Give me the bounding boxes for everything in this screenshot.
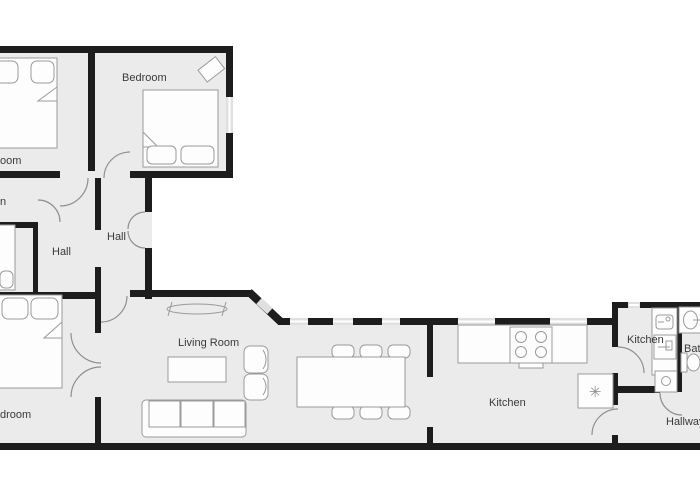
room-label-living-room: Living Room <box>178 337 239 349</box>
room-label-bathroom: Bat <box>684 343 700 355</box>
toilet-icon <box>681 353 700 372</box>
room-label-bedroom-top-left: oom <box>0 155 21 167</box>
room-label-hallway: Hallway <box>666 416 700 428</box>
sofa-icon <box>142 400 246 437</box>
room-label-hall-upper: Hall <box>107 231 126 243</box>
bed-icon <box>143 90 218 167</box>
bed-icon <box>0 58 57 148</box>
armchair-icon <box>244 346 268 373</box>
bathroom-sink-icon <box>679 307 700 333</box>
floorplan-drawing: ✳ <box>0 0 700 500</box>
dining-table-icon <box>297 357 405 407</box>
room-label-kitchen-small: Kitchen <box>627 334 664 346</box>
room-label-bedroom-top: Bedroom <box>122 72 167 84</box>
room-label-left-partial: n <box>0 196 6 208</box>
stove-icon <box>510 327 552 368</box>
fridge-snowflake-icon: ✳ <box>589 383 602 401</box>
bed-icon <box>0 295 62 388</box>
windows <box>226 97 640 325</box>
room-label-kitchen-main: Kitchen <box>489 397 526 409</box>
coffee-table-icon <box>168 357 226 382</box>
room-label-bedroom-bottom: droom <box>0 409 31 421</box>
washing-machine-icon <box>655 371 677 392</box>
room-label-hall-lower: Hall <box>52 246 71 258</box>
floorplan-canvas: ✳ oom Bedroom n Hall <box>0 0 700 500</box>
single-bed-icon <box>0 225 15 290</box>
sink-icon <box>656 315 673 329</box>
fridge-icon: ✳ <box>578 374 613 408</box>
armchair-icon <box>244 374 268 400</box>
